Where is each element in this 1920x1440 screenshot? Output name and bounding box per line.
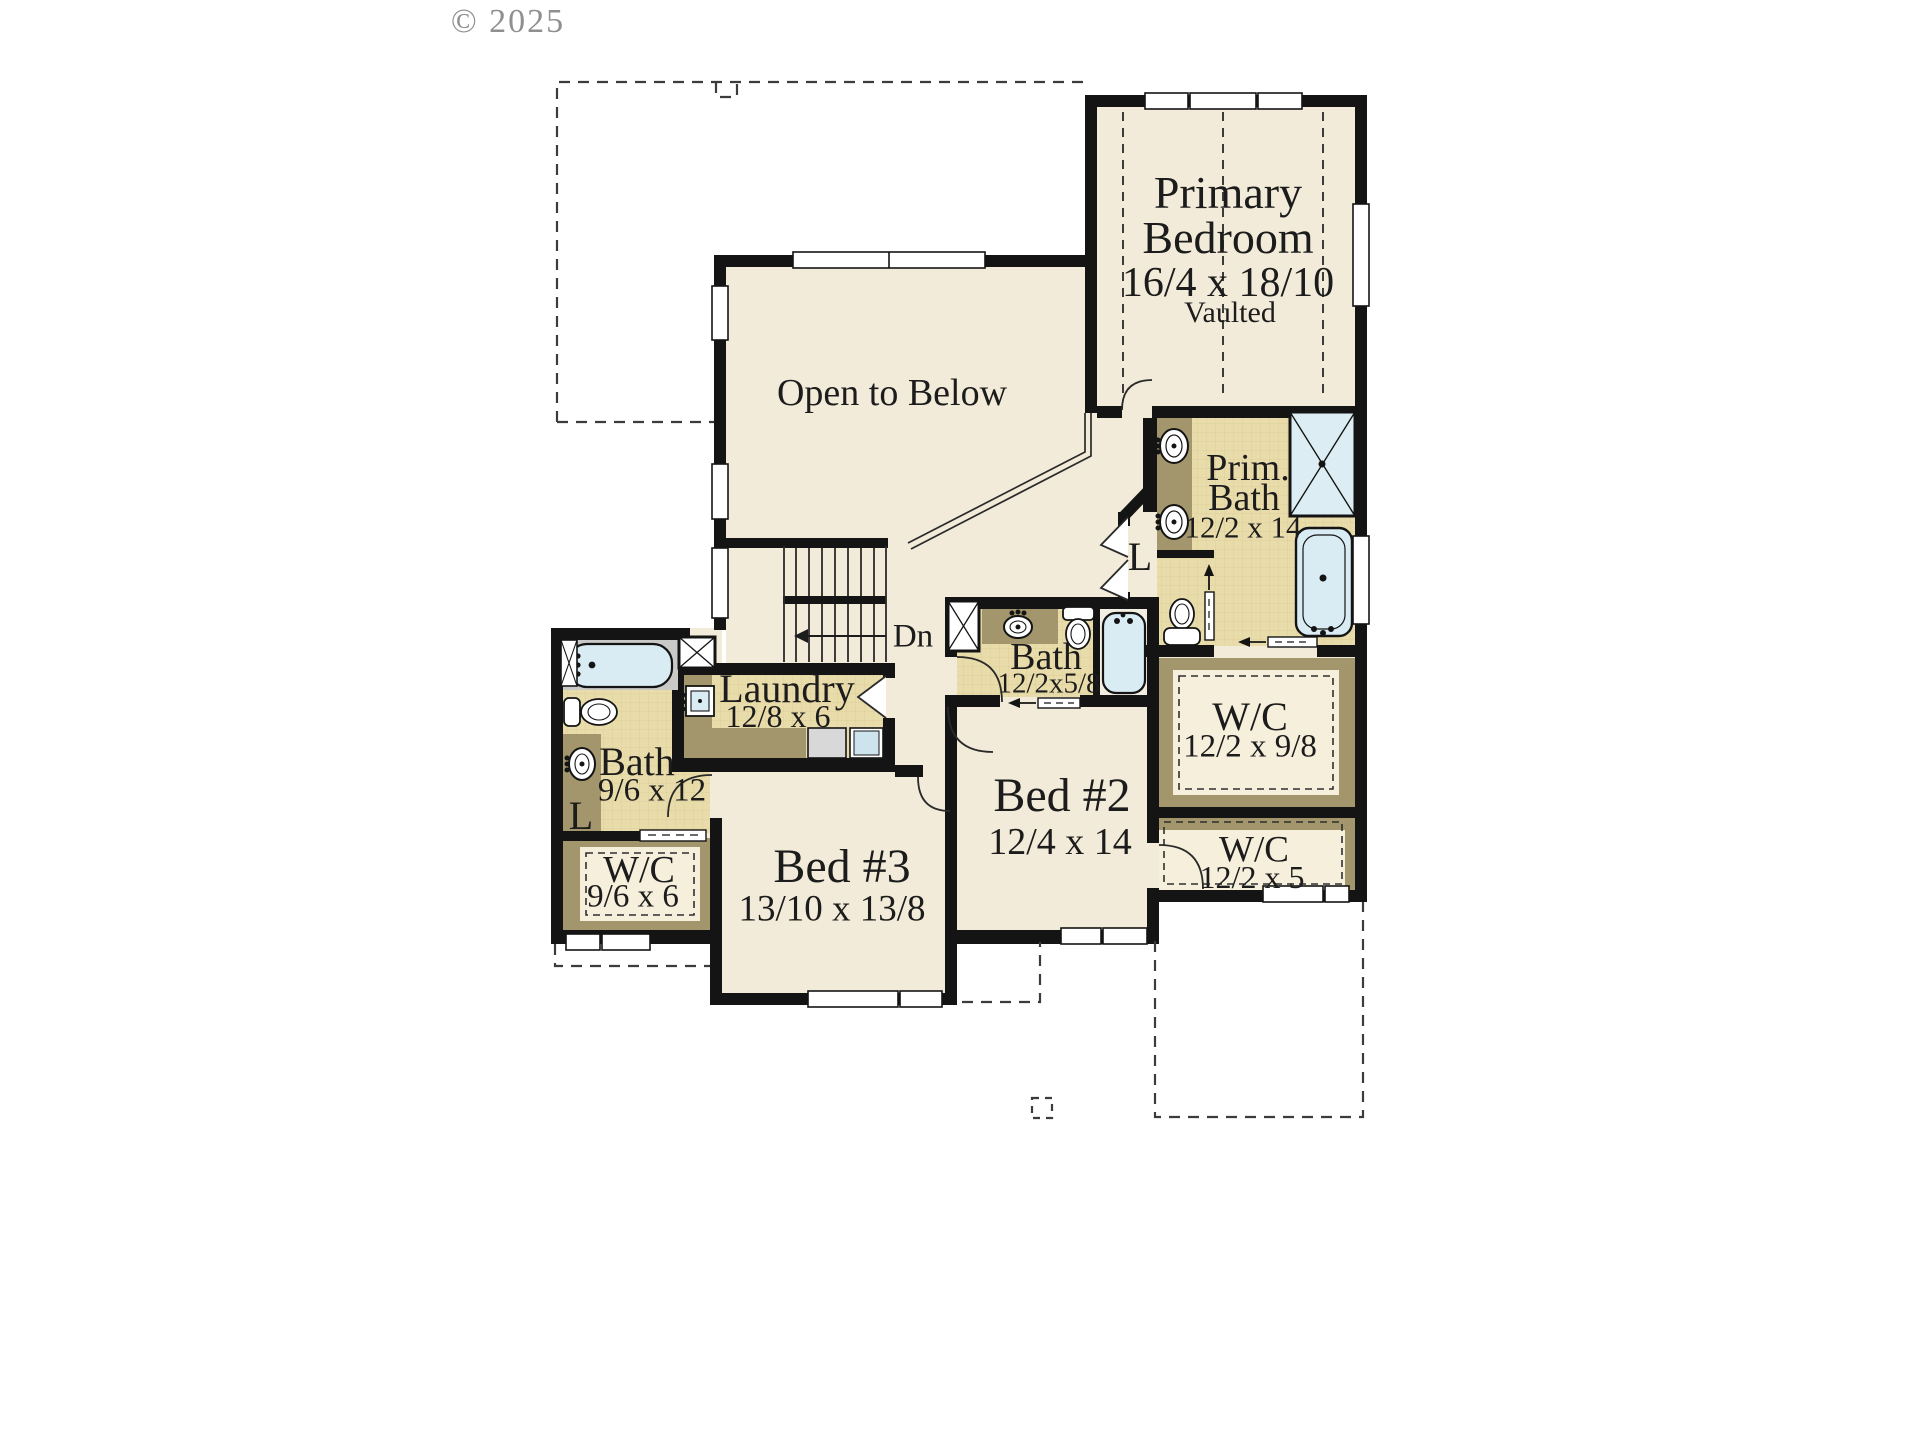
hall-bath-dims: 12/2x5/8 <box>997 670 1100 699</box>
open-to-below-label: Open to Below <box>777 374 1007 412</box>
left-bath-shower <box>679 637 715 668</box>
bed3-label: Bed #3 <box>773 843 910 891</box>
left-bath-toilet <box>564 698 617 726</box>
stairs-down-label: Dn <box>893 621 933 654</box>
hall-bath-tub <box>1103 613 1145 693</box>
floor-plan-page: © 2025 Primary Bedroom 16/4 x 18/10 Vaul… <box>0 0 1920 1440</box>
linen-closet-left-label: L <box>569 796 593 836</box>
laundry-sink <box>682 686 714 716</box>
primary-bedroom-note: Vaulted <box>1184 298 1276 328</box>
left-bath-tub <box>563 640 678 690</box>
bed2-dims: 12/4 x 14 <box>988 823 1132 861</box>
copyright-watermark: © 2025 <box>451 5 565 39</box>
primary-bedroom-label-2: Bedroom <box>1142 215 1313 261</box>
left-bath-dims: 9/6 x 12 <box>598 775 706 808</box>
bed3-dims: 13/10 x 13/8 <box>738 891 925 928</box>
walkin-closet-dims: 12/2 x 9/8 <box>1183 731 1317 764</box>
floor-plan-drawing <box>0 0 1920 1440</box>
primary-bath-dims: 12/2 x 14 <box>1184 512 1301 543</box>
dryer <box>850 728 883 758</box>
primary-bedroom-label-1: Primary <box>1154 170 1302 216</box>
laundry-dims: 12/8 x 6 <box>726 700 831 732</box>
closet-left-dims: 9/6 x 6 <box>587 881 679 914</box>
primary-bathtub <box>1296 528 1352 636</box>
linen-closet-hall-label: L <box>1128 537 1152 577</box>
bed2-label: Bed #2 <box>993 772 1130 820</box>
left-bath-window <box>561 640 577 686</box>
primary-shower <box>1290 412 1355 516</box>
closet-small-dims: 12/2 x 5 <box>1200 861 1305 893</box>
hall-bath-shower <box>948 601 979 651</box>
